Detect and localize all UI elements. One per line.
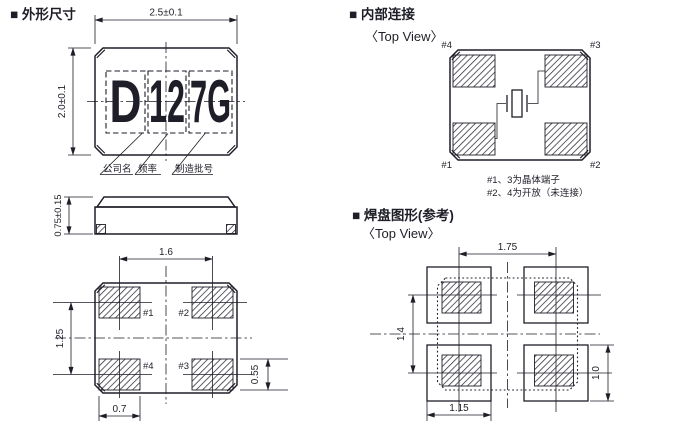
wire-to-pad-3 [528, 71, 545, 104]
dimension-width-value: 2.5±0.1 [149, 8, 183, 19]
marking-frequency-code: 12 [149, 68, 185, 135]
dimension-pad-width-value: 0.7 [113, 404, 127, 415]
dimension-land-pitch-x-value: 1.75 [498, 242, 518, 253]
crystal-electrode-plates [507, 95, 527, 112]
internal-pad-1-label: #1 [441, 160, 452, 171]
outline-top-view: D 12 7G 2.5±0.1 2.0±0.1 公司名 频率 制造批号 [57, 8, 245, 176]
crystal-plate [512, 90, 522, 117]
outline-side-view: 0.75±0.15 [53, 194, 237, 236]
marking-lot-code: 7G [190, 68, 231, 135]
dimension-height: 2.0±0.1 [57, 48, 91, 155]
internal-section-title: ■ 内部连接 [349, 6, 415, 22]
ref-pad-top-left [442, 282, 481, 313]
dimension-land-height-value: 1.0 [591, 366, 602, 380]
callout-frequency-label: 频率 [138, 163, 158, 175]
internal-pad-2-label: #2 [590, 160, 601, 171]
internal-pad-2 [545, 123, 587, 155]
callout-company-label: 公司名 [103, 163, 132, 175]
side-pad-left [97, 225, 106, 234]
land-top-view-label: 〈Top View〉 [362, 226, 441, 241]
callout-lot-label: 制造批号 [175, 163, 213, 175]
internal-note-2: #2、4为开放（未连接） [487, 187, 588, 199]
dimension-thickness: 0.75±0.15 [53, 194, 93, 236]
dimension-width: 2.5±0.1 [95, 8, 237, 45]
land-section-title: ■ 焊盘图形(参考) [352, 207, 454, 223]
marking-company-code: D [110, 68, 142, 135]
internal-note-1: #1、3为晶体端子 [487, 174, 560, 186]
side-pad-right [227, 225, 236, 234]
wire-to-pad-1 [495, 104, 506, 139]
crystal-package-datasheet-drawing: ■ 外形尺寸 D 12 7G 2.5±0.1 2.0 [0, 0, 675, 429]
dimension-pad-pitch-y: 1.25 [55, 303, 71, 375]
dimension-land-pitch-y-value: 1.4 [396, 327, 407, 341]
dimension-pad-pitch-x: 1.6 [120, 247, 213, 259]
dimension-thickness-value: 0.75±0.15 [53, 194, 64, 236]
package-body [95, 207, 237, 234]
internal-pad-4 [453, 55, 495, 87]
package-lid [97, 197, 235, 207]
internal-top-view-label: 〈Top View〉 [365, 29, 444, 44]
internal-pad-3-label: #3 [590, 40, 601, 51]
outline-section: ■ 外形尺寸 D 12 7G 2.5±0.1 2.0 [10, 6, 288, 421]
dimension-land-width: 1.15 [427, 399, 491, 421]
ref-pad-bottom-right [535, 355, 574, 386]
crystal-symbol [495, 71, 545, 139]
dimension-pad-height-value: 0.55 [250, 364, 261, 384]
internal-pad-3 [545, 55, 587, 87]
internal-pad-4-label: #4 [441, 40, 452, 51]
dimension-pad-width: 0.7 [99, 396, 140, 421]
dimension-land-width-value: 1.15 [449, 403, 469, 414]
internal-connection-section: ■ 内部连接 〈Top View〉 #4 #3 #1 #2 #1、3为晶体端子 … [349, 6, 601, 199]
bottom-pad-2-label: #2 [178, 308, 189, 319]
internal-pad-1 [453, 123, 495, 155]
dimension-pad-pitch-x-value: 1.6 [159, 247, 173, 258]
bottom-pad-3-label: #3 [178, 361, 189, 372]
outline-section-title: ■ 外形尺寸 [10, 6, 76, 22]
bottom-pad-1-label: #1 [143, 308, 154, 319]
land-crosshair-lines [408, 247, 612, 412]
ref-pad-bottom-left [442, 355, 481, 386]
ref-pad-top-right [535, 282, 574, 313]
dimension-pad-pitch-y-value: 1.25 [55, 328, 66, 348]
land-pattern-section: ■ 焊盘图形(参考) 〈Top View〉 1.75 1.4 1.15 [352, 207, 614, 421]
dimension-land-pitch-x: 1.75 [459, 242, 556, 254]
outline-bottom-view: #1 #2 #4 #3 1.6 1.25 0.7 [53, 247, 288, 421]
dimension-height-value: 2.0±0.1 [57, 84, 68, 118]
drawing-canvas: ■ 外形尺寸 D 12 7G 2.5±0.1 2.0 [0, 0, 675, 429]
bottom-pad-4-label: #4 [143, 361, 154, 372]
